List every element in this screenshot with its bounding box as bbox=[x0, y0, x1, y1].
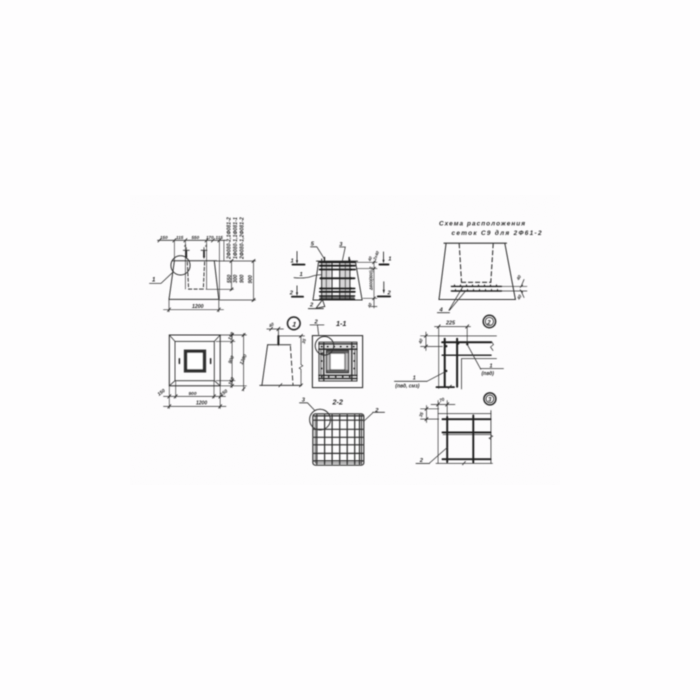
svg-text:(пвд): (пвд) bbox=[482, 371, 495, 377]
svg-text:1: 1 bbox=[413, 376, 416, 382]
svg-text:170: 170 bbox=[206, 235, 214, 240]
svg-text:900: 900 bbox=[248, 275, 254, 284]
svg-text:1Ф080-1,1Ф081-1: 1Ф080-1,1Ф081-1 bbox=[233, 217, 239, 259]
svg-text:2Ф080-1,2Ф081-2: 2Ф080-1,2Ф081-2 bbox=[240, 217, 246, 260]
svg-text:2Ф080-2,1Ф081-2: 2Ф080-2,1Ф081-2 bbox=[227, 217, 233, 260]
svg-text:Δ600(800)-2: Δ600(800)-2 bbox=[368, 266, 373, 291]
svg-text:1200: 1200 bbox=[192, 304, 204, 310]
svg-text:150: 150 bbox=[160, 235, 168, 240]
svg-text:115: 115 bbox=[216, 235, 224, 240]
svg-text:225: 225 bbox=[445, 321, 456, 327]
svg-text:550: 550 bbox=[192, 235, 200, 240]
svg-text:1: 1 bbox=[300, 272, 303, 278]
svg-text:(пвд, смз): (пвд, смз) bbox=[395, 384, 419, 390]
svg-text:300: 300 bbox=[233, 274, 239, 283]
svg-text:900: 900 bbox=[240, 274, 246, 283]
svg-text:900: 900 bbox=[189, 391, 197, 397]
svg-text:1-1: 1-1 bbox=[336, 319, 346, 328]
svg-text:1: 1 bbox=[388, 257, 391, 263]
svg-text:1: 1 bbox=[291, 259, 294, 265]
svg-text:2: 2 bbox=[486, 320, 491, 326]
svg-text:115: 115 bbox=[176, 235, 184, 240]
svg-text:Схема расположения: Схема расположения bbox=[439, 221, 525, 228]
svg-text:1200: 1200 bbox=[196, 401, 207, 407]
svg-text:2-2: 2-2 bbox=[332, 397, 343, 406]
